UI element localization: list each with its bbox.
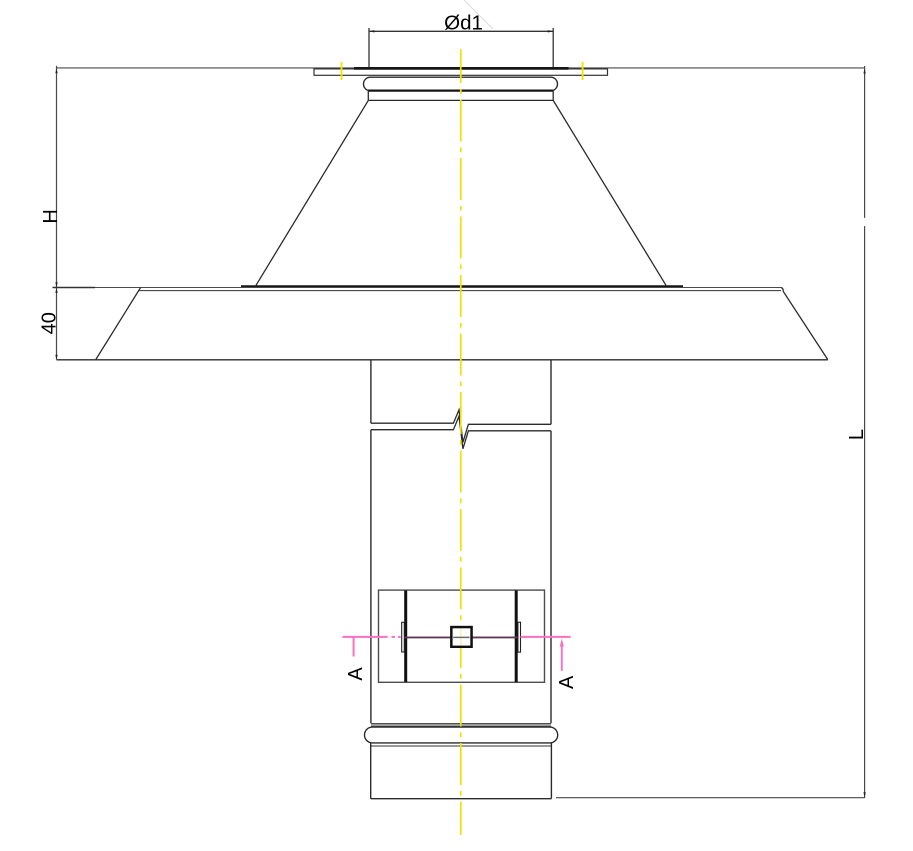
svg-text:A: A	[556, 675, 578, 689]
svg-text:L: L	[846, 429, 868, 440]
svg-text:40: 40	[39, 312, 61, 334]
svg-text:A: A	[345, 667, 367, 681]
svg-text:H: H	[40, 209, 62, 223]
